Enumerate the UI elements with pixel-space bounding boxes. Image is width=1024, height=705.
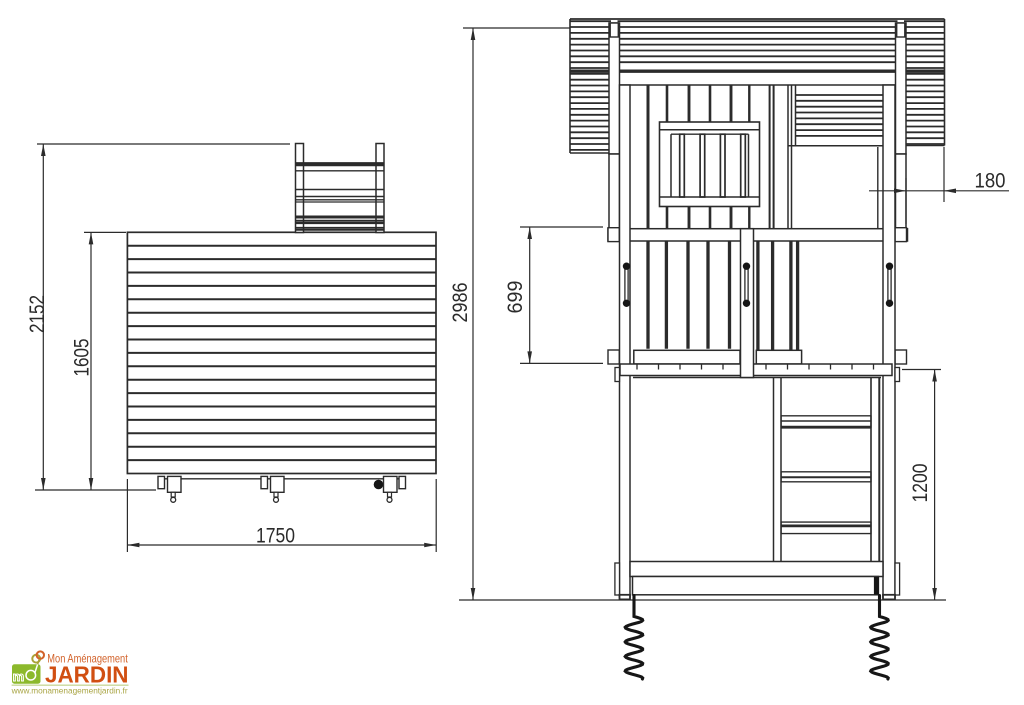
svg-text:2986: 2986 — [449, 283, 472, 323]
svg-text:1200: 1200 — [909, 464, 932, 503]
svg-text:www.monamenagementjardin.fr: www.monamenagementjardin.fr — [11, 686, 128, 696]
svg-text:m: m — [13, 669, 25, 684]
svg-text:1605: 1605 — [71, 339, 94, 377]
svg-text:2152: 2152 — [26, 295, 49, 333]
svg-text:1750: 1750 — [256, 525, 295, 548]
svg-text:180: 180 — [975, 170, 1006, 193]
svg-text:JARDIN: JARDIN — [45, 661, 129, 687]
svg-text:699: 699 — [504, 281, 527, 314]
